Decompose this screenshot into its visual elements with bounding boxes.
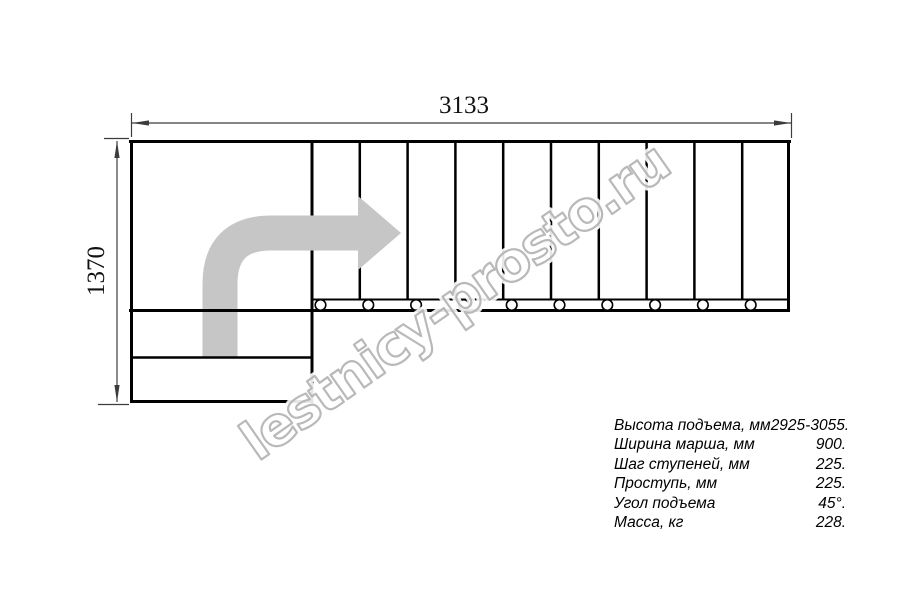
direction-arrow-head (358, 196, 401, 270)
fastener-circle (602, 300, 613, 311)
dim-arrowhead-right (774, 120, 791, 125)
fastener-circle (745, 300, 756, 311)
spec-label: Проступь, мм (614, 474, 717, 493)
spec-label: Шаг ступеней, мм (614, 455, 750, 474)
spec-row: Проступь, мм 225. (614, 474, 846, 493)
staircase-blueprint: lestnicy-prosto.ru lestnicy-prosto.ru 31… (0, 0, 900, 600)
spec-label: Ширина марша, мм (614, 435, 755, 454)
spec-row: Высота подъема, мм 2925-3055. (614, 416, 846, 435)
spec-row: Масса, кг 228. (614, 513, 846, 532)
spec-value: 225. (816, 474, 846, 493)
spec-value: 225. (816, 455, 846, 474)
fastener-circle (315, 300, 326, 311)
spec-value: 2925-3055. (771, 416, 849, 435)
dim-arrowhead-up (114, 141, 119, 158)
fastener-circles (315, 300, 756, 311)
direction-arrow-shaft (220, 233, 362, 358)
dim-arrowhead-left (132, 120, 149, 125)
spec-label: Угол подъема (614, 494, 715, 513)
fastener-circle (650, 300, 661, 311)
spec-value: 45°. (818, 494, 846, 513)
spec-label: Масса, кг (614, 513, 683, 532)
spec-label: Высота подъема, мм (614, 416, 771, 435)
width-dimension-label: 3133 (439, 92, 489, 120)
fastener-circle (554, 300, 565, 311)
height-dimension-label: 1370 (83, 246, 111, 296)
spec-table: Высота подъема, мм 2925-3055. Ширина мар… (614, 416, 846, 532)
fastener-circle (363, 300, 374, 311)
spec-value: 900. (816, 435, 846, 454)
dim-arrowhead-down (114, 385, 119, 402)
fastener-circle (698, 300, 709, 311)
spec-value: 228. (816, 513, 846, 532)
spec-row: Шаг ступеней, мм 225. (614, 455, 846, 474)
spec-row: Угол подъема 45°. (614, 494, 846, 513)
spec-row: Ширина марша, мм 900. (614, 435, 846, 454)
